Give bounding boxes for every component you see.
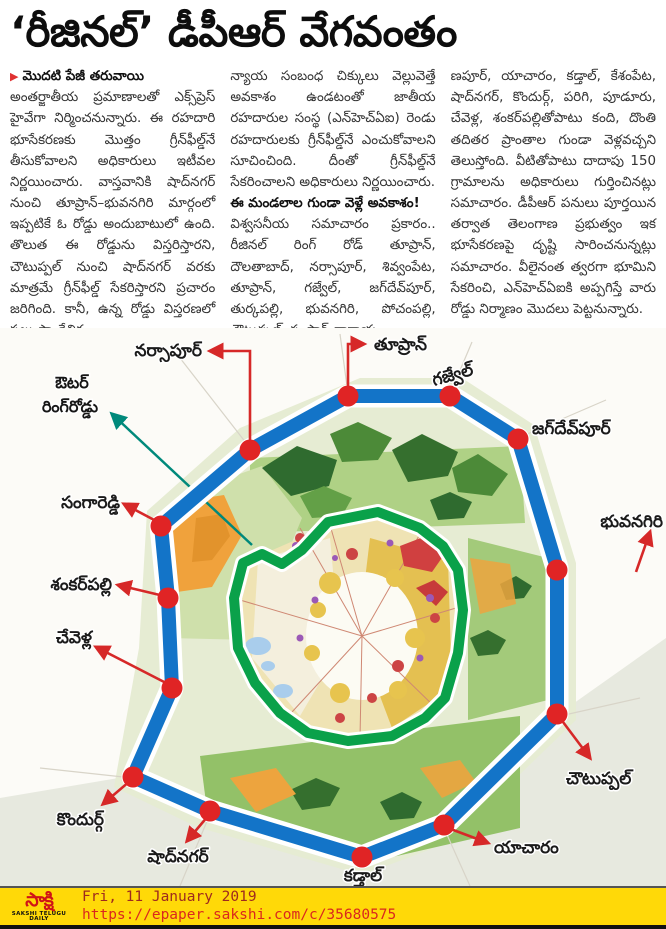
- town-label-kondurg: కొందుర్గ్: [56, 810, 105, 832]
- town-marker: [508, 429, 529, 450]
- ring-road-map: నర్సాపూర్ తూప్రాన్ గజ్వేల్ జగ్‌దేవ్‌పూర్…: [0, 328, 666, 886]
- continuation-label: మొదటి పేజీ తరువాయి: [22, 69, 143, 84]
- town-label-kadthal: కడ్తాల్: [343, 866, 385, 886]
- continuation-note: ▶మొదటి పేజీ తరువాయి: [10, 66, 215, 87]
- town-marker: [338, 386, 359, 407]
- town-label-jagdevpur: జగ్‌దేవ్‌పూర్: [532, 419, 612, 439]
- town-marker: [352, 847, 373, 868]
- article-columns: ▶మొదటి పేజీ తరువాయి అంతర్జాతీయ ప్రమాణాలత…: [0, 64, 666, 328]
- sub-heading: ఈ మండలాల గుండా వెళ్లే అవకాశం!: [230, 193, 435, 214]
- town-label-narsapur: నర్సాపూర్: [135, 341, 203, 363]
- article-column-2: న్యాయ సంబంధ చిక్కులు వెల్లువెత్తే అవకాశం…: [230, 66, 435, 328]
- sakshi-logo-telugu: సాక్షి: [6, 891, 72, 910]
- body-text: న్యాయ సంబంధ చిక్కులు వెల్లువెత్తే అవకాశం…: [230, 66, 435, 193]
- town-marker: [240, 440, 261, 461]
- clip-stamp: Fri, 11 January 2019 https://epaper.saks…: [82, 889, 396, 924]
- town-label-shankarpalli: శంకర్‌పల్లి: [51, 575, 113, 597]
- body-text: ణపూర్, యాచారం, కడ్తాల్, కేశంపేట, షాద్‌నగ…: [451, 66, 656, 320]
- orr-label-line2: రింగ్‌రోడ్డు: [42, 397, 99, 419]
- clip-url: https://epaper.sakshi.com/c/35680575: [82, 907, 396, 924]
- newspaper-clipping: ‘రీజినల్’ డీపీఆర్ వేగవంతం ▶మొదటి పేజీ తర…: [0, 0, 666, 929]
- sakshi-logo: సాక్షి SAKSHI TELUGU DAILY: [6, 891, 72, 923]
- town-marker: [547, 560, 568, 581]
- town-marker: [151, 516, 172, 537]
- sakshi-logo-tagline: SAKSHI TELUGU DAILY: [6, 912, 72, 923]
- epaper-footer-bar: సాక్షి SAKSHI TELUGU DAILY Fri, 11 Janua…: [0, 886, 666, 929]
- town-label-sangareddy: సంగారెడ్డి: [61, 493, 120, 515]
- headline-block: ‘రీజినల్’ డీపీఆర్ వేగవంతం: [0, 0, 666, 64]
- town-marker: [123, 767, 144, 788]
- article-column-3: ణపూర్, యాచారం, కడ్తాల్, కేశంపేట, షాద్‌నగ…: [451, 66, 656, 328]
- town-marker: [200, 801, 221, 822]
- article-column-1: ▶మొదటి పేజీ తరువాయి అంతర్జాతీయ ప్రమాణాలత…: [10, 66, 215, 328]
- body-text: అంతర్జాతీయ ప్రమాణాలతో ఎక్స్‌ప్రెస్ హైవేగ…: [10, 87, 215, 328]
- town-marker: [158, 588, 179, 609]
- town-label-chevella: చేవెళ్ల: [56, 628, 94, 650]
- map-illustration: నర్సాపూర్ తూప్రాన్ గజ్వేల్ జగ్‌దేవ్‌పూర్…: [0, 328, 666, 886]
- continuation-arrow-icon: ▶: [10, 70, 18, 83]
- town-label-shadnagar: షాద్‌నగర్: [147, 847, 209, 867]
- town-label-toopran: తూప్రాన్: [374, 335, 427, 356]
- body-text: విశ్వసనీయ సమాచారం ప్రకారం.. రీజినల్ రింగ…: [230, 214, 435, 328]
- clip-date: Fri, 11 January 2019: [82, 889, 396, 906]
- town-label-yacharam: యాచారం: [494, 838, 559, 858]
- town-label-choutuppal: చౌటుప్పల్: [566, 769, 634, 791]
- page-title: ‘రీజినల్’ డీపీఆర్ వేగవంతం: [10, 6, 656, 59]
- town-label-bhuvanagiri: భువనగిరి: [600, 512, 663, 532]
- town-marker: [434, 815, 455, 836]
- town-marker: [547, 704, 568, 725]
- orr-label-line1: ఔటర్: [55, 373, 89, 392]
- town-marker: [162, 678, 183, 699]
